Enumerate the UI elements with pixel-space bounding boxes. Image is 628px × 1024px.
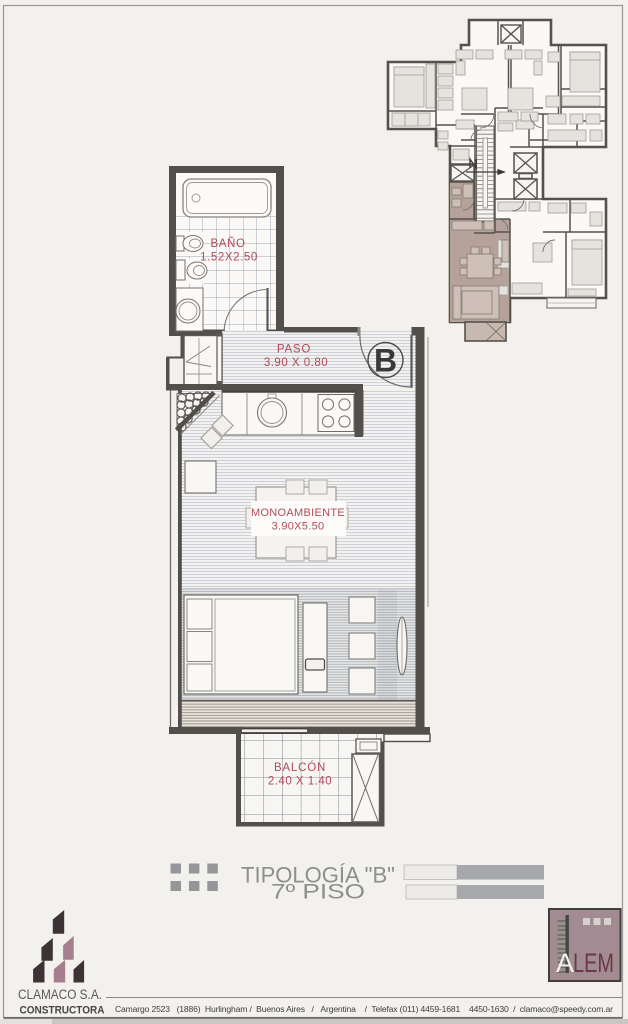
svg-text:BALCÓN: BALCÓN [274,761,326,774]
svg-text:3.90 X 0.80: 3.90 X 0.80 [264,357,328,369]
svg-text:PASO: PASO [277,344,311,356]
svg-text:B: B [374,343,397,379]
svg-text:A: A [556,948,574,978]
svg-text:2.40 X 1.40: 2.40 X 1.40 [268,776,332,788]
svg-text:3.90X5.50: 3.90X5.50 [272,521,325,533]
svg-text:Camargo 2523 (1886) Hurling: Camargo 2523 (1886) Hurlingham / Buenos … [115,1004,613,1014]
svg-text:BAÑO: BAÑO [211,237,246,250]
svg-text:7º PISO: 7º PISO [271,881,365,904]
svg-text:CONSTRUCTORA: CONSTRUCTORA [20,1005,105,1017]
svg-text:1.52X2.50: 1.52X2.50 [200,252,258,264]
svg-text:MONOAMBIENTE: MONOAMBIENTE [251,507,345,519]
svg-text:LEM: LEM [573,948,614,978]
svg-text:CLAMACO S.A.: CLAMACO S.A. [18,987,102,1002]
